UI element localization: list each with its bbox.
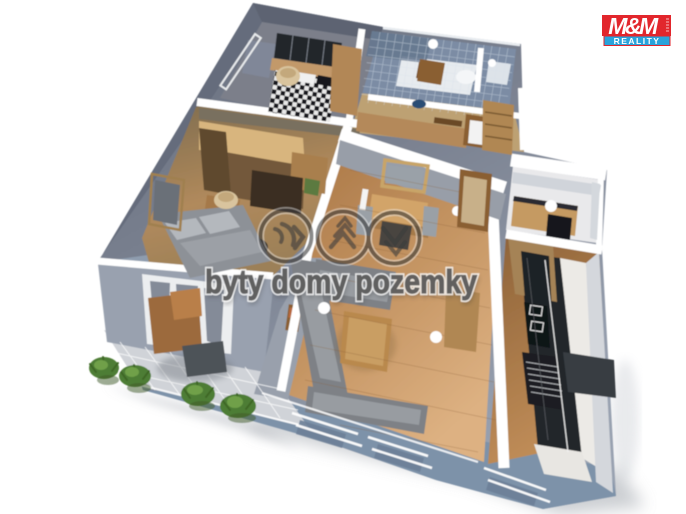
- svg-text:byty domy pozemky: byty domy pozemky: [205, 263, 478, 300]
- svg-text:REALITY: REALITY: [614, 36, 661, 46]
